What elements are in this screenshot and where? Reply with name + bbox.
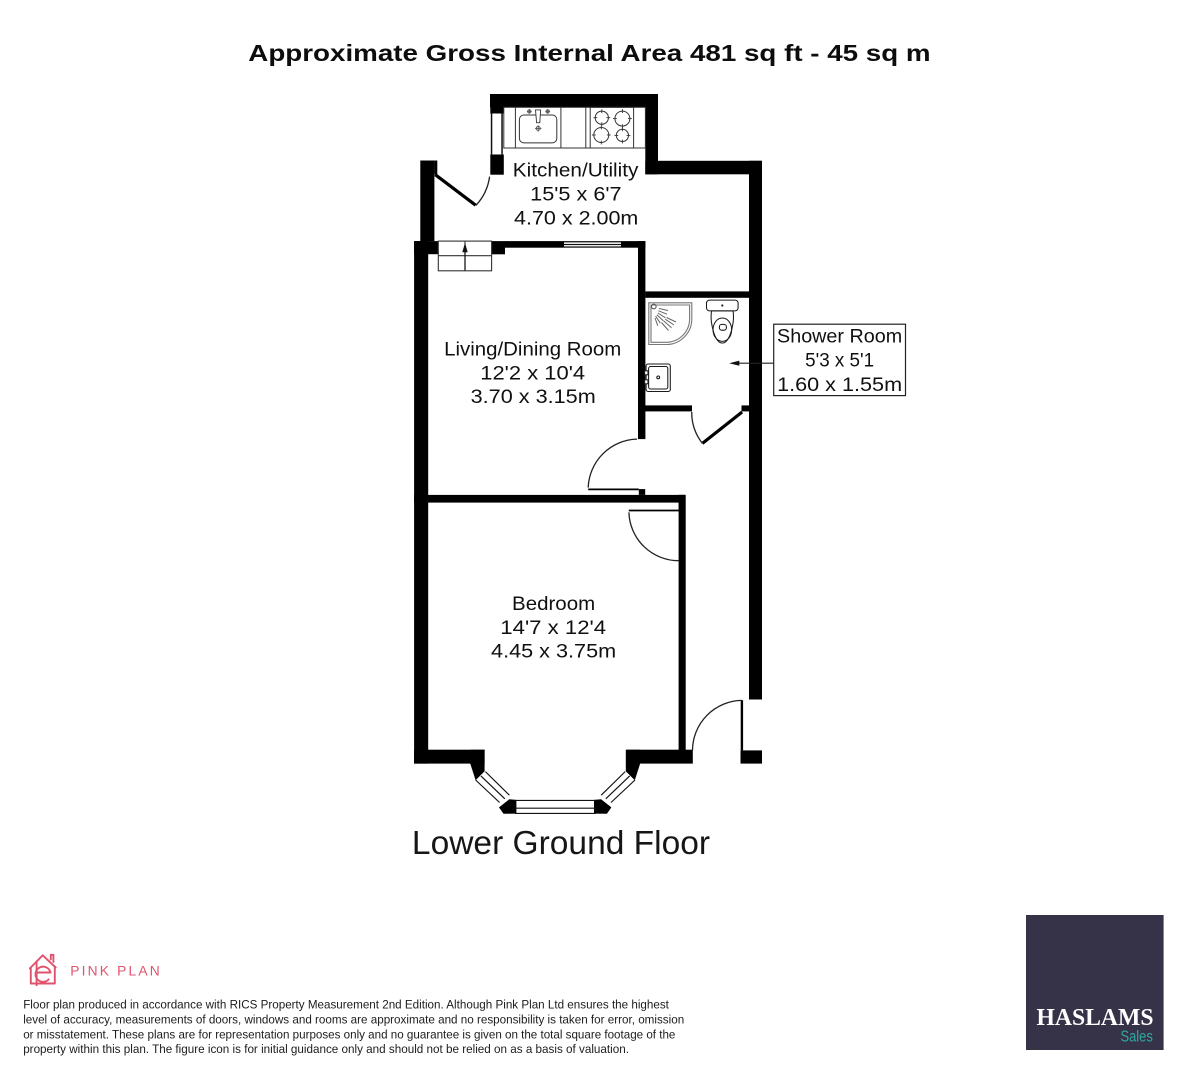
svg-text:Floor plan produced in accorda: Floor plan produced in accordance with R… xyxy=(23,998,669,1012)
svg-text:15'5 x 6'7: 15'5 x 6'7 xyxy=(530,183,621,205)
svg-text:level of accuracy, measurement: level of accuracy, measurements of doors… xyxy=(23,1013,684,1027)
svg-text:Bedroom: Bedroom xyxy=(512,593,595,615)
svg-text:HASLAMS: HASLAMS xyxy=(1037,1004,1154,1031)
svg-text:property within this plan. The: property within this plan. The figure ic… xyxy=(23,1042,629,1056)
svg-text:1.60 x 1.55m: 1.60 x 1.55m xyxy=(777,374,902,396)
svg-text:4.70 x 2.00m: 4.70 x 2.00m xyxy=(514,208,638,230)
svg-text:Living/Dining Room: Living/Dining Room xyxy=(444,339,621,361)
svg-text:12'2 x 10'4: 12'2 x 10'4 xyxy=(480,362,585,384)
svg-text:14'7 x 12'4: 14'7 x 12'4 xyxy=(500,617,606,639)
svg-text:4.45 x 3.75m: 4.45 x 3.75m xyxy=(491,640,616,662)
svg-text:PINK PLAN: PINK PLAN xyxy=(70,964,160,979)
svg-text:Approximate Gross Internal Are: Approximate Gross Internal Area 481 sq f… xyxy=(248,40,930,66)
svg-text:Sales: Sales xyxy=(1121,1028,1154,1045)
svg-text:or misstatement. These plans a: or misstatement. These plans are for rep… xyxy=(23,1027,675,1041)
svg-text:5'3 x 5'1: 5'3 x 5'1 xyxy=(805,350,874,372)
svg-text:Lower Ground Floor: Lower Ground Floor xyxy=(412,825,710,862)
svg-text:Kitchen/Utility: Kitchen/Utility xyxy=(513,160,639,182)
svg-text:Shower Room: Shower Room xyxy=(777,326,902,348)
svg-text:3.70 x 3.15m: 3.70 x 3.15m xyxy=(471,386,596,408)
